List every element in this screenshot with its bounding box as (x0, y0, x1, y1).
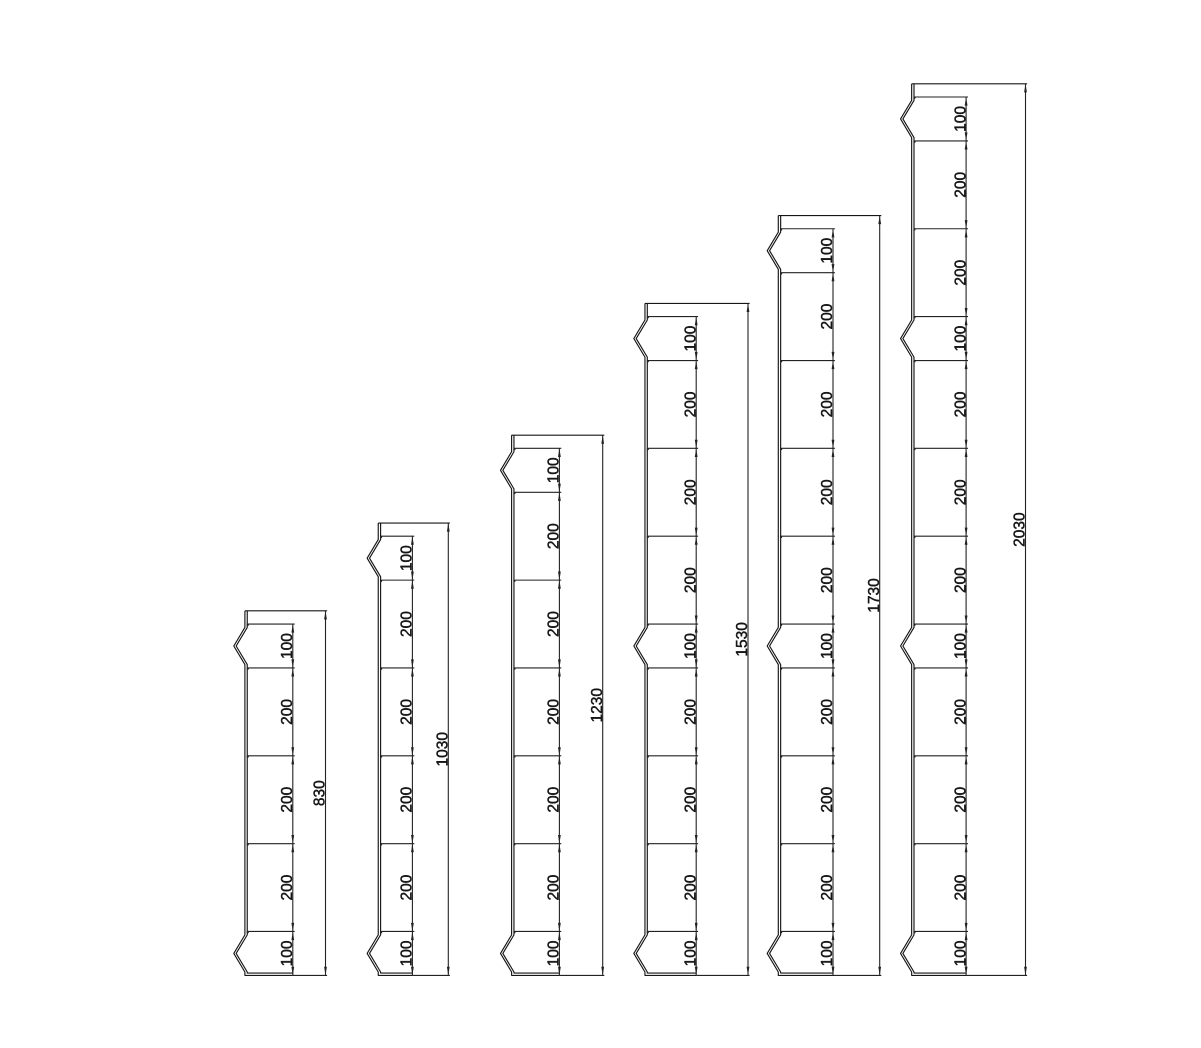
svg-text:100: 100 (952, 633, 969, 659)
svg-text:200: 200 (399, 786, 416, 812)
svg-text:200: 200 (546, 786, 563, 812)
svg-text:100: 100 (279, 633, 296, 659)
svg-text:100: 100 (399, 940, 416, 966)
svg-text:1030: 1030 (435, 732, 452, 767)
svg-text:200: 200 (819, 391, 836, 417)
svg-text:200: 200 (682, 479, 699, 505)
svg-text:100: 100 (682, 325, 699, 351)
svg-text:200: 200 (399, 611, 416, 637)
svg-text:200: 200 (546, 523, 563, 549)
svg-text:200: 200 (399, 874, 416, 900)
svg-text:200: 200 (819, 874, 836, 900)
svg-text:100: 100 (682, 633, 699, 659)
svg-text:100: 100 (546, 940, 563, 966)
svg-text:200: 200 (952, 259, 969, 285)
svg-text:200: 200 (819, 567, 836, 593)
svg-text:200: 200 (952, 479, 969, 505)
svg-text:100: 100 (546, 457, 563, 483)
svg-text:200: 200 (279, 874, 296, 900)
svg-text:200: 200 (819, 786, 836, 812)
svg-text:200: 200 (682, 567, 699, 593)
svg-text:200: 200 (952, 699, 969, 725)
svg-text:200: 200 (952, 786, 969, 812)
svg-text:100: 100 (952, 325, 969, 351)
svg-text:200: 200 (279, 786, 296, 812)
svg-text:100: 100 (952, 106, 969, 132)
svg-text:200: 200 (819, 699, 836, 725)
svg-text:1230: 1230 (589, 688, 606, 723)
svg-text:200: 200 (399, 699, 416, 725)
svg-text:200: 200 (819, 479, 836, 505)
svg-text:100: 100 (819, 237, 836, 263)
svg-text:830: 830 (312, 780, 329, 806)
svg-text:200: 200 (546, 611, 563, 637)
svg-text:200: 200 (952, 874, 969, 900)
svg-text:200: 200 (952, 567, 969, 593)
svg-text:2030: 2030 (1012, 512, 1029, 547)
svg-text:100: 100 (819, 940, 836, 966)
svg-text:200: 200 (682, 391, 699, 417)
svg-text:200: 200 (682, 874, 699, 900)
svg-text:100: 100 (952, 940, 969, 966)
svg-text:200: 200 (682, 786, 699, 812)
svg-text:200: 200 (546, 874, 563, 900)
svg-text:100: 100 (399, 545, 416, 571)
svg-text:200: 200 (279, 699, 296, 725)
svg-text:1730: 1730 (866, 578, 883, 613)
svg-text:100: 100 (819, 633, 836, 659)
svg-text:200: 200 (952, 391, 969, 417)
svg-text:200: 200 (952, 172, 969, 198)
svg-text:200: 200 (682, 699, 699, 725)
svg-text:200: 200 (546, 699, 563, 725)
svg-text:1530: 1530 (734, 622, 751, 657)
svg-text:200: 200 (819, 303, 836, 329)
svg-text:100: 100 (682, 940, 699, 966)
svg-text:100: 100 (279, 940, 296, 966)
